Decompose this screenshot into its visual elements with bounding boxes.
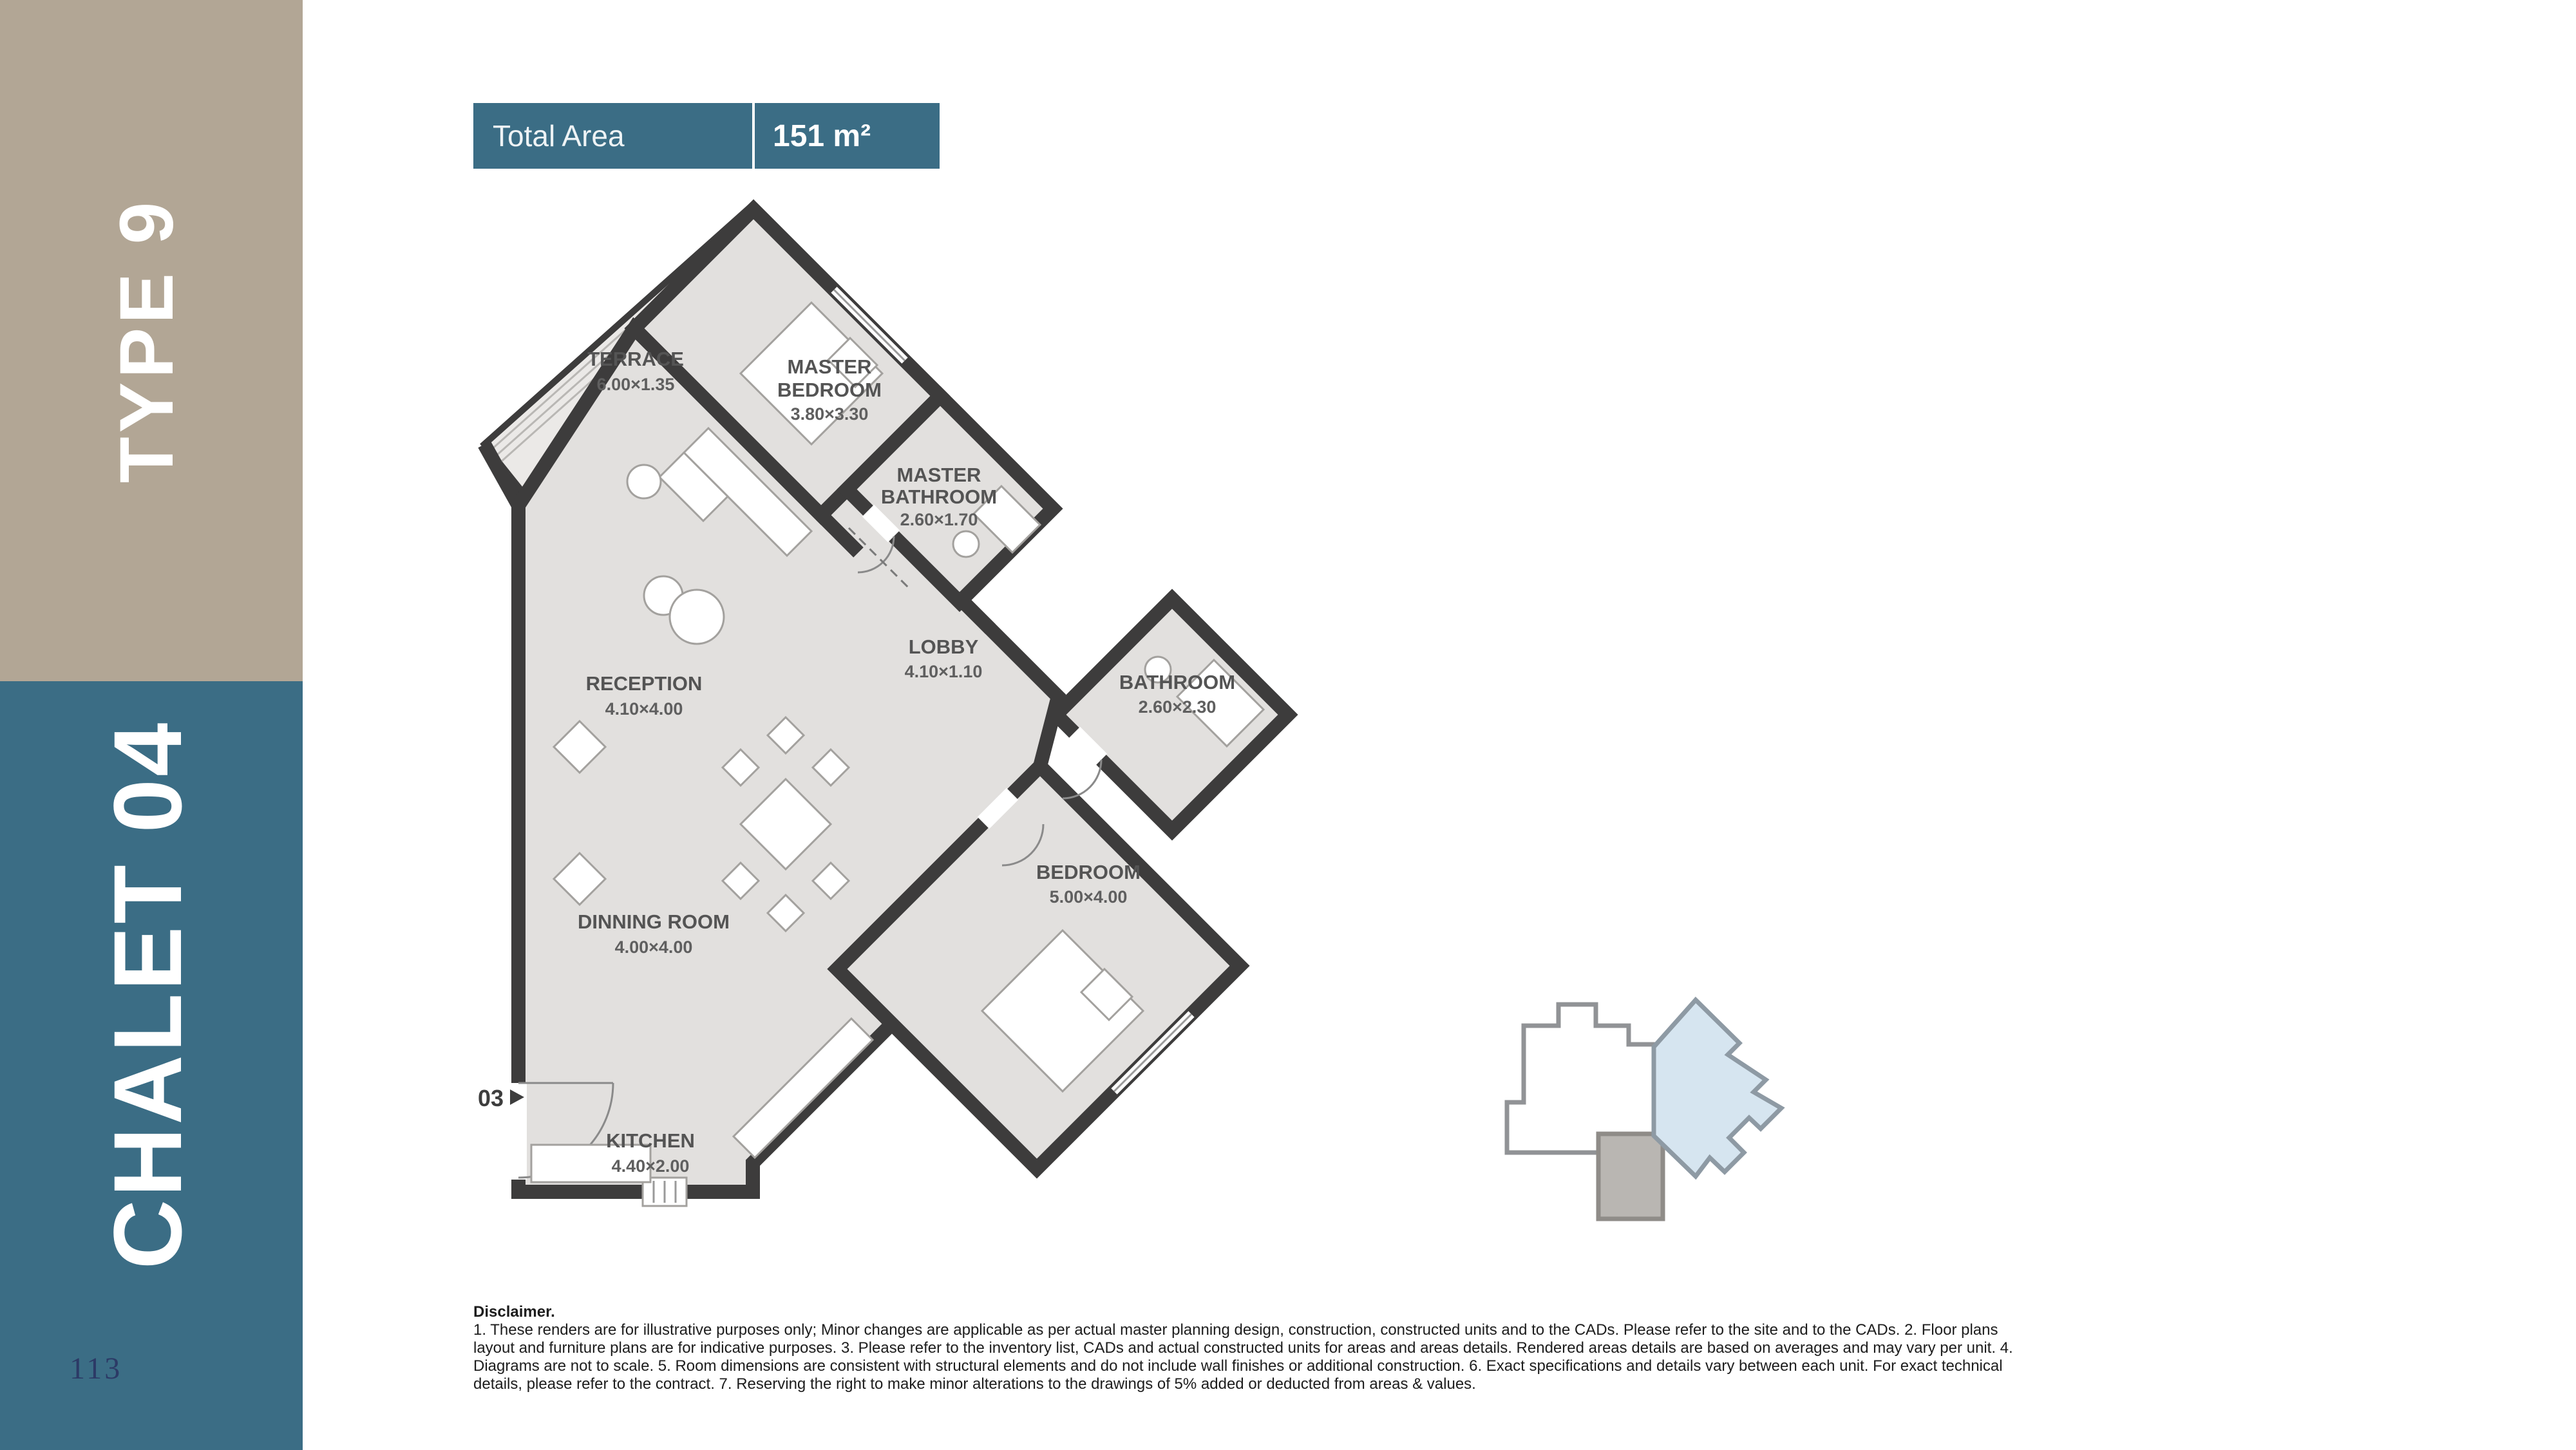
floor-plan: TERRACE 6.00×1.35 MASTER BEDROOM 3.80×3.… [451, 180, 1352, 1223]
page-number: 113 [70, 1351, 122, 1386]
room-label-bathroom: BATHROOM [1119, 671, 1235, 693]
total-area-value: 151 m² [755, 118, 871, 154]
room-label-lobby: LOBBY [909, 636, 979, 658]
room-label-master-bedroom-1: MASTER [788, 355, 872, 378]
master-basin [953, 531, 979, 557]
chalet-label: CHALET 04 [67, 663, 228, 1326]
disclaimer-title: Disclaimer. [473, 1303, 2013, 1321]
room-label-bedroom: BEDROOM [1036, 861, 1141, 883]
type-label: TYPE 9 [70, 83, 224, 598]
room-label-kitchen: KITCHEN [606, 1129, 695, 1152]
unit-locator-map [1481, 953, 1868, 1243]
disclaimer-line: details, please refer to the contract. 7… [473, 1375, 2013, 1393]
locator-unit-highlight [1654, 1000, 1781, 1176]
room-dims-master-bathroom: 2.60×1.70 [900, 510, 978, 529]
room-label-master-bathroom-1: MASTER [897, 464, 981, 486]
room-dims-reception: 4.10×4.00 [605, 699, 683, 719]
room-label-master-bathroom-2: BATHROOM [881, 485, 997, 508]
locator-core-block [1598, 1134, 1663, 1219]
room-dims-dinning-room: 4.00×4.00 [615, 937, 693, 957]
total-area-label: Total Area [473, 118, 625, 153]
room-dims-master-bedroom: 3.80×3.30 [791, 404, 869, 424]
total-area-bar: Total Area 151 m² [473, 103, 940, 169]
disclaimer-block: Disclaimer. 1. These renders are for ill… [473, 1303, 2013, 1393]
disclaimer-line: layout and furniture plans are for indic… [473, 1339, 2013, 1357]
room-dims-terrace: 6.00×1.35 [597, 375, 675, 394]
room-dims-bedroom: 5.00×4.00 [1050, 887, 1128, 907]
room-label-dinning-room: DINNING ROOM [578, 910, 730, 933]
room-dims-bathroom: 2.60×2.30 [1139, 697, 1217, 717]
total-area-value-cell: 151 m² [755, 103, 940, 169]
brochure-page: TYPE 9 CHALET 04 113 Total Area 151 m² [0, 0, 2576, 1450]
side-table [627, 465, 661, 498]
room-label-reception: RECEPTION [586, 672, 703, 695]
total-area-label-cell: Total Area [473, 103, 752, 169]
room-dims-kitchen: 4.40×2.00 [612, 1156, 690, 1176]
disclaimer-line: 1. These renders are for illustrative pu… [473, 1321, 2013, 1339]
disclaimer-line: Diagrams are not to scale. 5. Room dimen… [473, 1357, 2013, 1375]
room-dims-lobby: 4.10×1.10 [905, 662, 983, 681]
entrance-number: 03 [478, 1085, 504, 1111]
room-label-terrace: TERRACE [587, 348, 684, 370]
room-label-master-bedroom-2: BEDROOM [777, 379, 882, 401]
locator-building-outline [1507, 1004, 1654, 1153]
coffee-table-2 [670, 590, 724, 644]
